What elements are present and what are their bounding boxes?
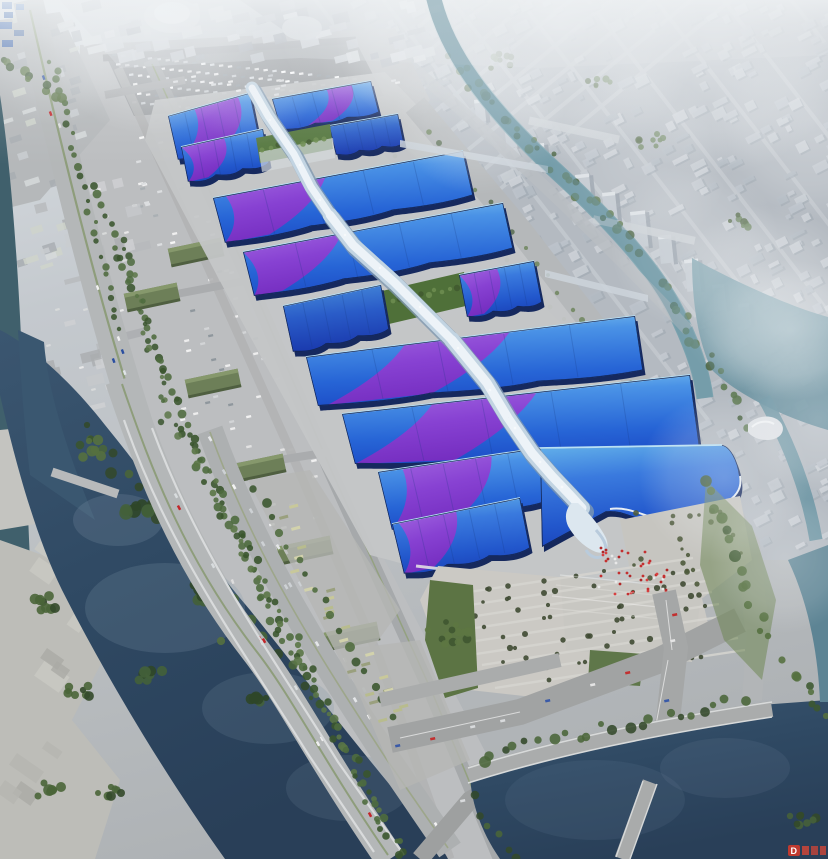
svg-text:D: D — [791, 846, 798, 856]
